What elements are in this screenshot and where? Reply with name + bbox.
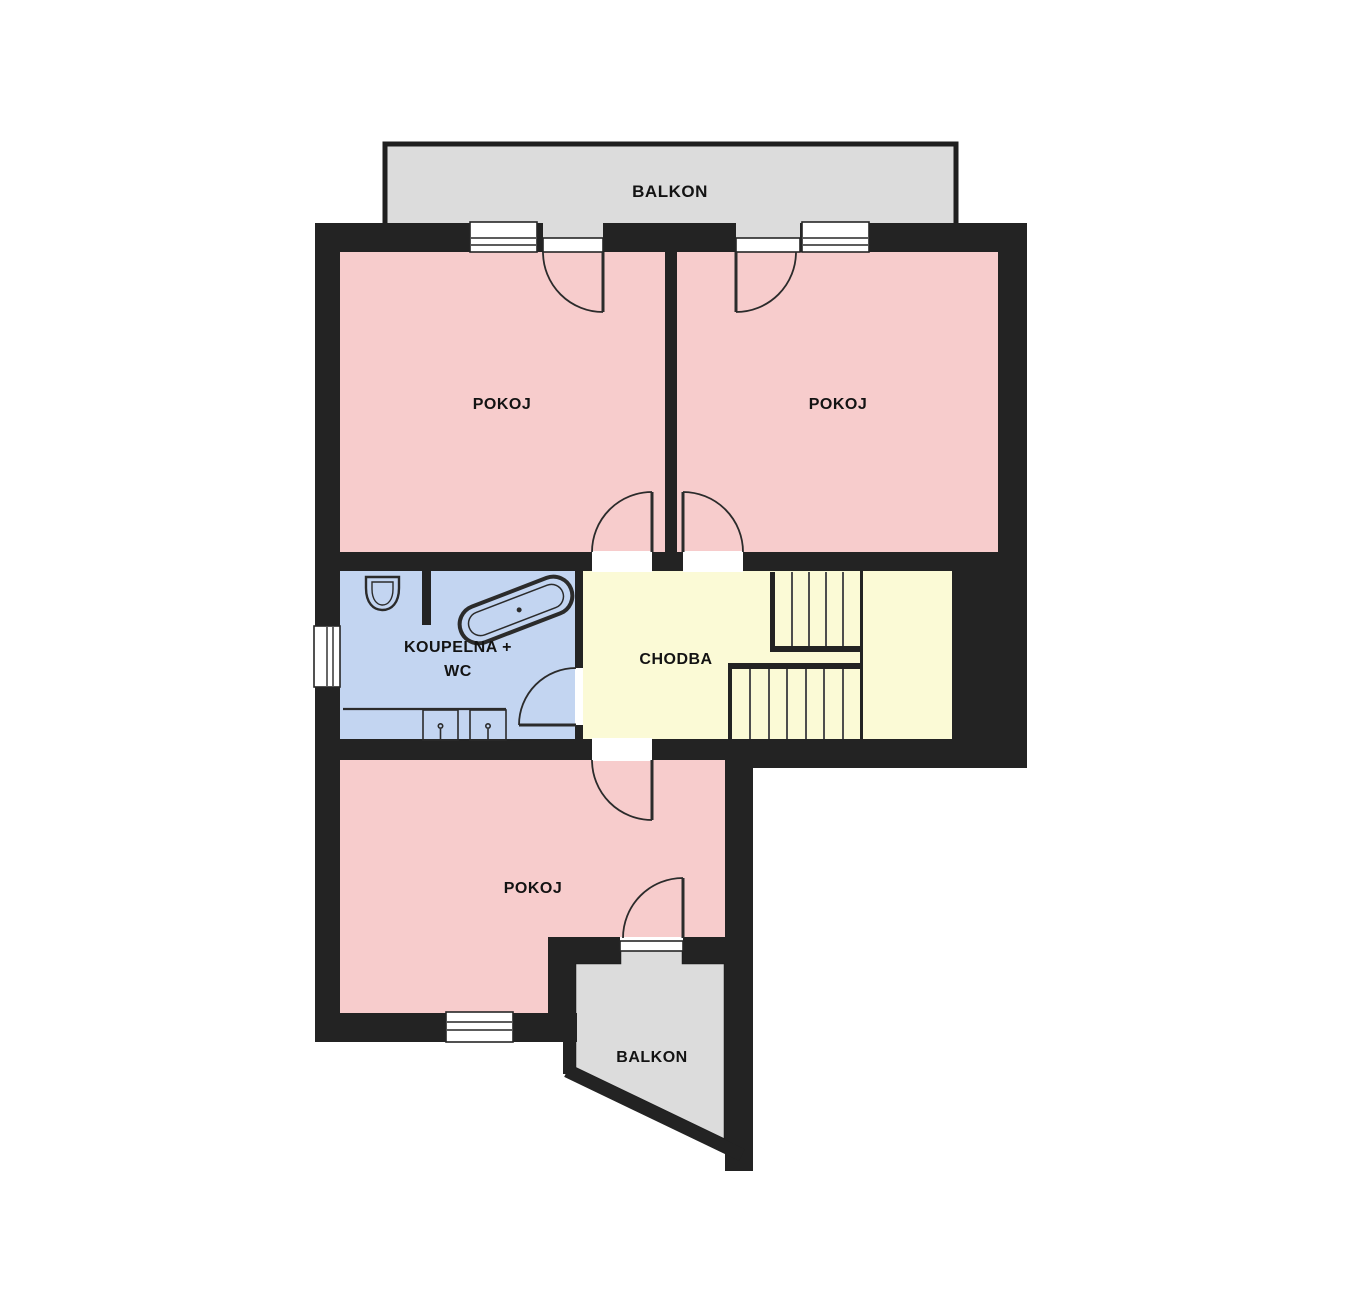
wall-balconydoor-right [683, 937, 725, 963]
wall-wc-partition [422, 571, 431, 625]
bathroom-label-line1: KOUPELNA + [404, 639, 512, 656]
door-opening-balcony-right [736, 238, 800, 252]
balcony-bottom-label: BALKON [616, 1049, 687, 1066]
door-cap-left [543, 223, 603, 238]
door-opening-balcony-left [543, 238, 603, 252]
floor-plan-svg: BALKON POKOJ POKOJ KOUPELNA + WC CHODBA … [0, 0, 1368, 1316]
door-opening-room-bottom [592, 738, 652, 761]
wall-top [315, 223, 1027, 252]
stair-right-edge [860, 571, 863, 739]
hallway [583, 571, 952, 739]
wall-mid-bottom-left [315, 739, 753, 760]
stair-lower-left-edge [728, 663, 732, 739]
wall-rooms-bottom [315, 552, 1027, 571]
hallway-area [583, 571, 952, 739]
balcony-top-label: BALKON [632, 182, 708, 201]
wall-bottomroom-right [725, 760, 753, 1171]
wall-room-divider [665, 252, 677, 552]
door-opening-room-right [683, 551, 743, 572]
window-bottom-icon [446, 1012, 513, 1042]
window-top-left-icon [470, 222, 537, 252]
window-top-right-icon [802, 222, 869, 252]
bathroom-label-line2: WC [444, 663, 472, 680]
wall-right-upper [998, 223, 1027, 552]
window-bathroom-icon [314, 626, 340, 687]
room-top-left-label: POKOJ [473, 396, 532, 413]
stair-upper-left-edge [770, 572, 775, 652]
wall-mid-bottom-right [753, 739, 1027, 768]
room-bottom-label: POKOJ [504, 880, 563, 897]
floor-plan-page: BALKON POKOJ POKOJ KOUPELNA + WC CHODBA … [0, 0, 1368, 1316]
hallway-label: CHODBA [639, 651, 712, 668]
room-top-right-label: POKOJ [809, 396, 868, 413]
wall-right-middle [952, 552, 1027, 768]
stair-landing-bar-lower [730, 663, 862, 669]
door-opening-room-left [592, 551, 652, 572]
door-threshold-balcony-bottom [620, 941, 683, 951]
door-cap-right [736, 223, 800, 238]
stair-landing-bar-upper [770, 646, 862, 652]
door-opening-bathroom [575, 668, 583, 725]
